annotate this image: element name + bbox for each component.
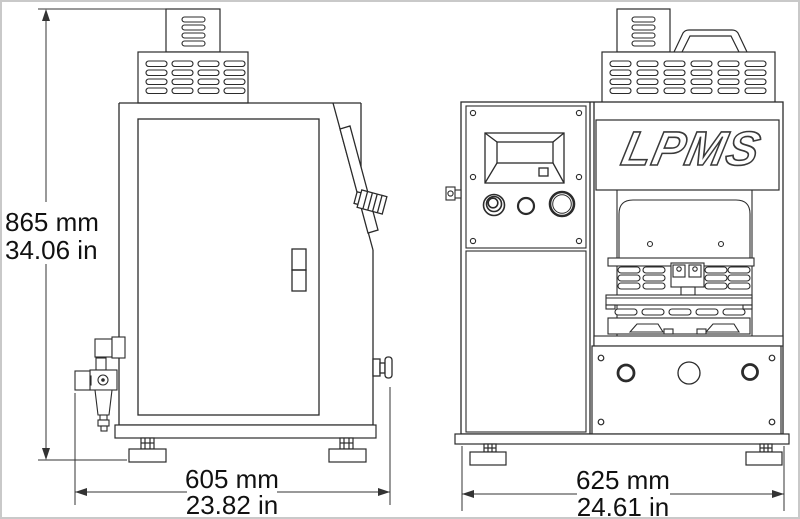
exhaust-chimney-front [617,9,670,52]
clamp-knob-upper [353,189,387,214]
door-latch-strip [340,126,378,233]
vent-box [138,52,248,103]
arrowhead-right-icon [772,490,784,498]
arrowhead-up-icon [42,9,50,21]
technical-drawing-page: 865 mm 34.06 in [0,0,800,519]
press-head-plate [619,200,750,258]
mid-plate [594,336,783,346]
exhaust-chimney [166,9,220,52]
base-and-feet [115,425,376,462]
vent-box-front [602,52,775,104]
panel-plate [592,346,781,434]
leveling-foot [129,438,166,462]
mold-support-base [608,318,750,334]
brand-logo: LPMS [617,122,766,175]
base-plate [455,434,789,444]
logo-text: LPMS [617,122,766,175]
lower-front-panel [592,346,781,434]
width-imperial-label: 24.61 in [577,492,670,519]
leveling-foot [746,444,782,465]
side-view: 865 mm 34.06 in [5,9,392,519]
drain-fitting [98,420,109,426]
arrowhead-down-icon [42,448,50,460]
gauge-center-dot [101,378,105,382]
drain-fitting [100,415,107,420]
side-knob-front [446,187,461,200]
regulator-neck [96,358,106,370]
mount-bracket [112,337,125,358]
handle-outer [674,30,747,52]
regulator-knob [95,339,112,357]
handle-inner [682,36,739,52]
width-metric-label: 625 mm [576,465,670,495]
leveling-foot [470,444,506,465]
machine-dimension-drawing: 865 mm 34.06 in [2,2,800,519]
side-knob-lower [373,357,392,378]
door-handle [292,249,306,270]
arrowhead-left-icon [75,488,87,496]
arrowhead-left-icon [462,490,474,498]
cabinet [119,103,392,425]
air-filter-regulator [75,337,125,431]
lower-platen-slots [615,309,745,315]
door-handle [292,270,306,291]
arrowhead-right-icon [378,488,390,496]
filter-bowl [95,390,112,415]
depth-imperial-label: 23.82 in [186,490,279,519]
heater-fins-right [705,267,750,289]
leveling-foot [329,438,366,462]
drain-tip [101,426,107,431]
base-and-feet-front [455,434,789,465]
width-dimension: 625 mm 24.61 in [462,446,784,519]
height-imperial-label: 34.06 in [5,235,98,265]
carry-handle [674,30,747,52]
height-metric-label: 865 mm [5,207,99,237]
brand-panel: LPMS [596,120,779,190]
base-plate [115,425,376,438]
shutoff-valve-handle [75,371,90,390]
front-view: LPMS [446,9,789,519]
